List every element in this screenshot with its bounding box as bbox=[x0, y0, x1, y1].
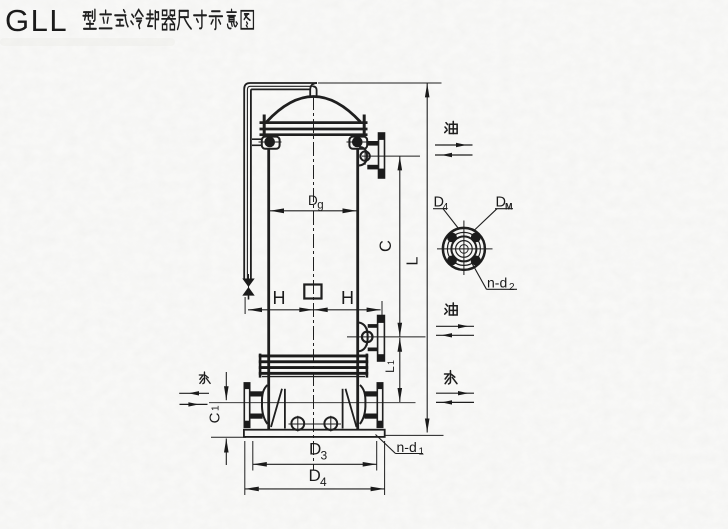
svg-text:g: g bbox=[317, 200, 323, 212]
svg-text:D: D bbox=[309, 466, 321, 485]
svg-text:C: C bbox=[377, 240, 395, 252]
svg-text:1: 1 bbox=[419, 447, 425, 458]
svg-text:2: 2 bbox=[509, 282, 515, 293]
svg-text:M: M bbox=[505, 202, 513, 212]
svg-text:L: L bbox=[405, 256, 422, 265]
svg-text:C: C bbox=[207, 412, 224, 423]
svg-text:4: 4 bbox=[320, 475, 327, 489]
svg-text:1: 1 bbox=[211, 405, 222, 411]
svg-text:H: H bbox=[273, 288, 286, 308]
svg-text:GLL: GLL bbox=[5, 3, 68, 38]
svg-text:n-d: n-d bbox=[487, 275, 507, 291]
svg-text:1: 1 bbox=[386, 360, 396, 365]
svg-text:D: D bbox=[309, 440, 321, 459]
svg-text:3: 3 bbox=[321, 449, 328, 463]
svg-text:n-d: n-d bbox=[397, 439, 417, 455]
svg-text:L: L bbox=[383, 366, 397, 373]
svg-text:H: H bbox=[341, 288, 354, 308]
